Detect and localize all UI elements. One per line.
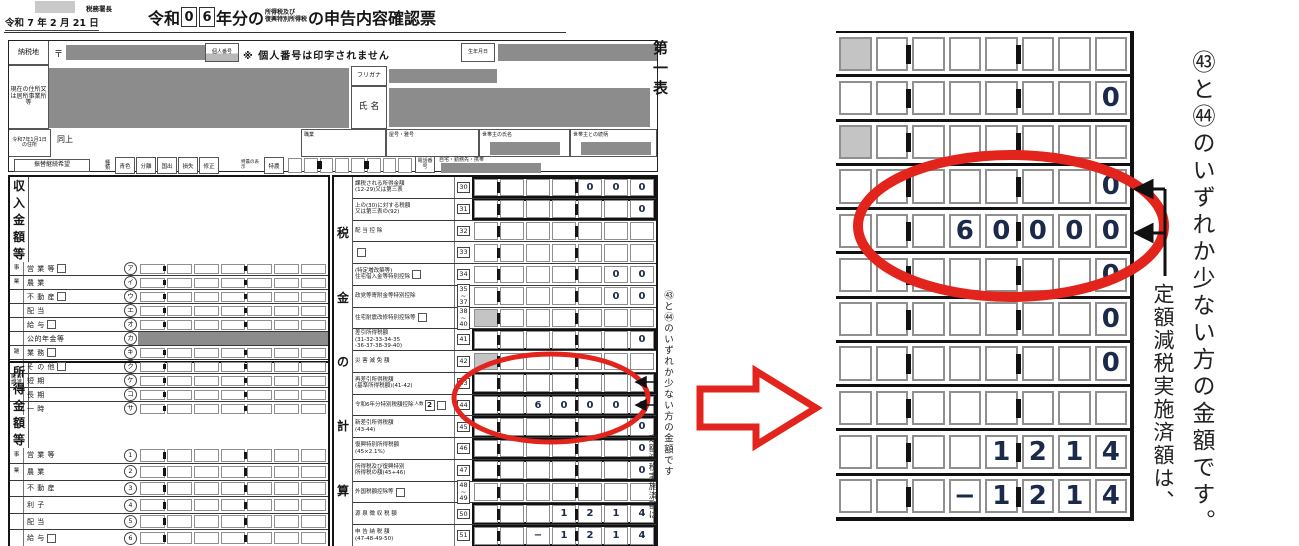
digit-cell: 6 [949, 214, 982, 248]
income-row-value [138, 262, 328, 275]
digit-cell [912, 391, 945, 425]
tax-row-value: 000 [472, 177, 656, 198]
digit-cell [949, 125, 982, 159]
digit-cell: 0 [1095, 302, 1128, 336]
phone-redacted [441, 163, 541, 173]
income-group-label: 業 [10, 276, 24, 289]
digit-cell [247, 466, 272, 479]
digit-cell: 0 [630, 374, 654, 392]
digit-cell [140, 466, 165, 479]
digit-cell: 1 [985, 435, 1018, 469]
digit-cell [221, 264, 246, 274]
digit-cell [839, 214, 872, 248]
digit-cell [247, 362, 272, 372]
tax-row-value [472, 221, 656, 242]
digit-cell [526, 244, 550, 262]
digit-cell [140, 515, 165, 528]
digit-cell: 2 [578, 505, 602, 523]
tax-row: 再差引所得税額 (基準所得税額)(41-42) 43 0 [353, 373, 656, 395]
pointer-arrows-right [1136, 181, 1165, 276]
income-row: 一 時 サ [10, 402, 328, 415]
digit-cell: 0 [1095, 169, 1128, 203]
tax-row-value: −1214 [472, 525, 656, 546]
digit-cell [194, 264, 219, 274]
digit-cell [247, 292, 272, 302]
kubun-box [418, 313, 427, 322]
digit-cell [221, 466, 246, 479]
digit-cell [578, 200, 602, 218]
digit-cell [985, 169, 1018, 203]
tax-row: 復興特別所得税額 (45×2.1%) 46 0 [353, 438, 656, 460]
digit-cell [500, 440, 524, 458]
digit-cell [274, 449, 299, 462]
digit-cell [949, 346, 982, 380]
digit-cell [167, 390, 192, 400]
income2-row-value [138, 514, 328, 530]
digit-cell [578, 483, 602, 501]
digit-cell [876, 125, 909, 159]
tax-row: 申 告 納 税 額 (47-48-49-50) 51 −1214 [353, 525, 656, 546]
tax-row-number: 33 [457, 247, 470, 258]
digit-cell [194, 482, 219, 495]
tax-row: 新差引所得税額 (43-44) 45 0 [353, 416, 656, 438]
relation-redacted [581, 142, 651, 155]
zoom-row-value [836, 34, 1130, 73]
digit-cell [247, 348, 272, 358]
digit-cell [194, 278, 219, 288]
digit-cell [167, 376, 192, 386]
side-note-small-main: ㊸と㊹のいずれか少ない方の金額です [660, 290, 674, 546]
digit-cell: 0 [630, 179, 654, 197]
tax-office-label: 税務署長 [86, 3, 112, 13]
digit-cell [985, 81, 1018, 115]
title-underline [4, 32, 566, 33]
tax-row-value [472, 482, 656, 503]
digit-cell [167, 306, 192, 316]
digit-cell [167, 320, 192, 330]
type-option-box: 国出 [157, 157, 177, 174]
tax-row-label: 所得税及び復興特別 所得税の額(45+46) [355, 464, 405, 477]
digit-cell [839, 37, 872, 71]
income-group-label: 事 [10, 262, 24, 275]
income-row: 事 営 業 等 ア [10, 262, 328, 276]
digit-cell [578, 244, 602, 262]
digit-cell [1058, 169, 1091, 203]
annotation-flat-tax-cut: 定額減税実施済額は、 [1148, 283, 1178, 546]
digit-cell [552, 374, 576, 392]
digit-cell: 2 [578, 527, 602, 545]
tax-row-value: 0 [472, 199, 656, 220]
digit-cell [167, 515, 192, 528]
digit-cell [140, 362, 165, 372]
income-row-label: 長 期 [27, 390, 45, 400]
income-row-code: ウ [124, 290, 137, 303]
digit-cell [474, 418, 498, 436]
digit-cell [140, 264, 165, 274]
digit-cell [167, 264, 192, 274]
income2-group-label [10, 497, 24, 513]
digit-cell: 0 [1095, 81, 1128, 115]
digit-cell [985, 258, 1018, 292]
digit-cell [140, 376, 165, 386]
digit-cell [1095, 125, 1128, 159]
income-row: 長 期 コ [10, 388, 328, 402]
type-option-box: 分離 [136, 157, 156, 174]
digit-cell [500, 266, 524, 284]
kubun-box [57, 362, 66, 371]
tax-row-number: 30 [457, 182, 470, 193]
tax-row-number: 47 [457, 465, 470, 476]
digit-cell [194, 532, 219, 545]
digit-cell [912, 214, 945, 248]
zoom-arrow [700, 371, 816, 445]
tax-row-number: 41 [457, 334, 470, 345]
digit-cell [604, 374, 628, 392]
tax-row: 災 害 減 免 額 42 [353, 351, 656, 373]
income2-group-label [10, 530, 24, 546]
tax-row-value: 0 [472, 373, 656, 394]
tax-row-number: 46 [457, 443, 470, 454]
digit-cell [949, 169, 982, 203]
income2-group-label: 業 [10, 464, 24, 480]
tokuno-box: 特農 [264, 157, 284, 174]
digit-cell [335, 158, 349, 173]
digit-cell [578, 374, 602, 392]
digit-cell [500, 461, 524, 479]
tax-row-label: 外国税額控除等 [355, 489, 394, 495]
income-row-value [138, 360, 328, 373]
digit-cell [194, 515, 219, 528]
digit-cell [839, 125, 872, 159]
income-row-code: イ [124, 276, 137, 289]
postal-code-redacted [66, 45, 206, 60]
digit-cell [194, 390, 219, 400]
digit-cell [839, 346, 872, 380]
digit-cell [398, 158, 412, 173]
digit-cell [301, 362, 326, 372]
title-tax-stack: 所得税及び 復興特別所得税 [265, 10, 307, 24]
tax-row-label: 住宅耐震改修特別控除等 [355, 315, 416, 321]
digit-cell [301, 306, 326, 316]
digit-cell [604, 331, 628, 349]
digit-cell [552, 440, 576, 458]
income-row: 雑 業 務 キ [10, 346, 328, 360]
digit-cell [604, 222, 628, 240]
year-digit-box-1: 0 [181, 7, 197, 27]
digit-cell [839, 302, 872, 336]
kubun-box [47, 320, 56, 329]
digit-cell [301, 376, 326, 386]
tax-row-value: 0 [472, 416, 656, 437]
tax-row-number: 31 [457, 204, 470, 215]
digit-cell [140, 306, 165, 316]
digit-cell [247, 376, 272, 386]
digit-cell [274, 320, 299, 330]
tax-row: 課税される所得金額 (12-29)又は第三表 30 000 [353, 177, 656, 199]
digit-cell: 1 [552, 505, 576, 523]
income2-group-label [10, 481, 24, 497]
zoom-row-value: 60000 [836, 211, 1130, 250]
digit-cell: 0 [630, 287, 654, 305]
reference-number-boxes [287, 157, 413, 173]
digit-cell [912, 81, 945, 115]
digit-cell [140, 404, 165, 414]
same-as-above: 同上 [57, 134, 73, 145]
income-row: 不 動 産 ウ [10, 290, 328, 304]
income-row: 配 当 エ [10, 304, 328, 318]
digit-cell [552, 244, 576, 262]
zoom-row-value: 0 [836, 167, 1130, 206]
kubun-box [47, 348, 56, 357]
digit-cell [474, 374, 498, 392]
income-row-value [138, 388, 328, 401]
digit-cell [526, 331, 550, 349]
digit-cell [578, 461, 602, 479]
digit-cell [474, 461, 498, 479]
digit-cell [1058, 81, 1091, 115]
income-row: 業 農 業 イ [10, 276, 328, 290]
digit-cell [1058, 258, 1091, 292]
digit-cell [383, 158, 397, 173]
digit-cell [876, 81, 909, 115]
digit-cell [221, 306, 246, 316]
digit-cell [876, 302, 909, 336]
digit-cell [912, 346, 945, 380]
digit-cell: 1 [604, 505, 628, 523]
income-row-value [138, 374, 328, 387]
filing-date: 令和 7 年 2 月 21 日 [5, 15, 99, 31]
zoom-row [836, 122, 1130, 166]
zoom-row: 0 [836, 166, 1130, 210]
digit-cell [876, 258, 909, 292]
digit-cell [1022, 125, 1055, 159]
kubun-box [57, 292, 66, 301]
digit-cell [140, 482, 165, 495]
digit-cell [578, 266, 602, 284]
digit-cell [604, 309, 628, 327]
digit-cell [247, 499, 272, 512]
zoom-row: 0 [836, 77, 1130, 121]
digit-cell [1022, 169, 1055, 203]
income-section-title: 収入金額等 [10, 177, 29, 262]
digit-cell [552, 418, 576, 436]
digit-cell [474, 505, 498, 523]
side-note-small-sub: 定額減税実施済額は [646, 434, 658, 546]
digit-cell [578, 331, 602, 349]
income-row-value [138, 346, 328, 359]
digit-cell [985, 125, 1018, 159]
income-row-label: そ の 他 [27, 362, 55, 372]
kubun-box [437, 401, 446, 410]
income2-row-code: 5 [124, 515, 137, 528]
digit-cell [500, 309, 524, 327]
digit-cell [474, 483, 498, 501]
income2-row-code: 3 [124, 482, 137, 495]
digit-cell [301, 499, 326, 512]
income-row-code: キ [124, 346, 137, 359]
kubun-box [357, 248, 366, 257]
digit-cell: 1 [1058, 479, 1091, 513]
digit-cell: 2 [1022, 435, 1055, 469]
digit-cell [912, 479, 945, 513]
digit-cell: 0 [1058, 214, 1091, 248]
zoom-row-value: 0 [836, 344, 1130, 383]
tax-calc-title: 税金の計算 [334, 177, 353, 546]
income-row-label: 業 務 [27, 348, 45, 358]
income2-row-value [138, 497, 328, 513]
tax-form-screenshot: 税務署長 令和 7 年 2 月 21 日 令和 0 6 年分の 所得税及び 復興… [0, 0, 1299, 546]
digit-cell [1058, 37, 1091, 71]
kubun-box [47, 534, 56, 543]
income2-row-value [138, 464, 328, 480]
income-columns: 収入金額等 事 営 業 等 ア [8, 175, 330, 546]
kubun-box [412, 270, 421, 279]
tax-row: 所得税及び復興特別 所得税の額(45+46) 47 0 [353, 460, 656, 482]
digit-cell [876, 214, 909, 248]
income-row-value [138, 332, 328, 345]
tax-row: 源 泉 徴 収 税 額 50 1214 [353, 503, 656, 525]
zoom-row-value: 0 [836, 300, 1130, 339]
digit-cell [221, 515, 246, 528]
relation-field: 世帯主との続柄 [570, 129, 657, 157]
digit-cell [247, 320, 272, 330]
digit-cell [221, 482, 246, 495]
digit-cell [274, 532, 299, 545]
digit-cell [552, 179, 576, 197]
income-row-code: オ [124, 318, 137, 331]
zoom-row-value: 0 [836, 255, 1130, 294]
income2-row-value [138, 448, 328, 464]
digit-cell [140, 320, 165, 330]
digit-cell [604, 440, 628, 458]
digit-cell [288, 158, 302, 173]
digit-cell [167, 466, 192, 479]
digit-cell [839, 169, 872, 203]
digit-cell [221, 376, 246, 386]
tokuno-group: 特農の表示 特農 [241, 157, 284, 174]
digit-cell [221, 348, 246, 358]
digit-cell: 4 [1095, 435, 1128, 469]
digit-cell [221, 278, 246, 288]
digit-cell: 0 [1095, 258, 1128, 292]
digit-cell [301, 466, 326, 479]
digit-cell [1022, 346, 1055, 380]
tax-row: 上の(30)に対する税額 又は第三表の(92) 31 0 [353, 199, 656, 221]
digit-cell [985, 302, 1018, 336]
digit-cell [1095, 37, 1128, 71]
first-table-label: 第一表 [650, 40, 671, 100]
digit-cell [247, 532, 272, 545]
digit-cell [474, 179, 498, 197]
digit-cell [604, 483, 628, 501]
digit-cell [500, 222, 524, 240]
digit-cell [912, 435, 945, 469]
digit-cell [1058, 391, 1091, 425]
tax-row-label: 申 告 納 税 額 (47-48-49-50) [355, 529, 393, 542]
digit-cell [140, 449, 165, 462]
tax-row-number: 34 [457, 269, 470, 280]
tax-row-number: 48 ~ 49 [457, 480, 470, 504]
digit-cell [552, 309, 576, 327]
persons-label: 人数 [415, 402, 424, 407]
digit-cell [274, 515, 299, 528]
income2-row-label: 農 業 [27, 467, 45, 477]
digit-cell [630, 309, 654, 327]
digit-cell [1022, 258, 1055, 292]
digit-cell [301, 515, 326, 528]
year-digit-box-2: 6 [199, 7, 215, 27]
digit-cell [247, 515, 272, 528]
digit-cell [949, 435, 982, 469]
income2-row-value [138, 530, 328, 546]
title-era: 令和 [148, 5, 180, 29]
digit-cell [301, 292, 326, 302]
tax-row-number: 43 [457, 378, 470, 389]
tax-row-label: 復興特別所得税額 (45×2.1%) [355, 442, 399, 455]
digit-cell [578, 287, 602, 305]
digit-cell [247, 449, 272, 462]
income-row-code: エ [124, 304, 137, 317]
type-option-box: 損失 [178, 157, 198, 174]
digit-cell [194, 376, 219, 386]
tax-row: (特定増改築等) 住宅借入金等特別控除 34 00 [353, 264, 656, 286]
tax-row-value [472, 242, 656, 263]
digit-cell [500, 483, 524, 501]
income2-row-code: 4 [124, 499, 137, 512]
tax-row-label: 令和6年分特別税額控除 [355, 402, 414, 408]
digit-cell: 0 [604, 396, 628, 414]
tax-row: 政党等寄附金等特別控除 35 ~ 37 00 [353, 286, 656, 308]
digit-cell [221, 362, 246, 372]
digit-cell [500, 244, 524, 262]
digit-cell [604, 353, 628, 371]
tax-calc-section: 税金の計算 課税される所得金額 (12-29)又は第三表 30 000 [332, 175, 658, 546]
digit-cell [247, 278, 272, 288]
digit-cell [474, 200, 498, 218]
digit-cell [221, 499, 246, 512]
digit-cell: 0 [985, 214, 1018, 248]
income-group-label [10, 304, 24, 317]
tax-row-label: 災 害 減 免 額 [355, 358, 390, 364]
title-suffix: の申告内容確認票 [308, 5, 436, 29]
digit-cell [301, 404, 326, 414]
digit-cell [630, 353, 654, 371]
digit-cell [552, 483, 576, 501]
digit-cell [604, 200, 628, 218]
digit-cell [167, 292, 192, 302]
digit-cell [140, 532, 165, 545]
digit-cell [500, 287, 524, 305]
digit-cell [876, 37, 909, 71]
zoom-row: 0 [836, 254, 1130, 298]
digit-cell [474, 222, 498, 240]
tax-row-number: 45 [457, 422, 470, 433]
income-row-label: 給 与 [27, 320, 45, 330]
digit-cell: 0 [1022, 214, 1055, 248]
digit-cell [474, 287, 498, 305]
digit-cell [526, 353, 550, 371]
digit-cell [552, 331, 576, 349]
income-group-label [10, 332, 24, 345]
digit-cell [630, 244, 654, 262]
digit-cell [247, 306, 272, 316]
income-group-label: 雑 [10, 346, 24, 359]
digit-cell [301, 320, 326, 330]
income2-row-label: 利 子 [27, 500, 45, 510]
digit-cell [474, 244, 498, 262]
digit-cell [876, 479, 909, 513]
zoom-row [836, 387, 1130, 431]
